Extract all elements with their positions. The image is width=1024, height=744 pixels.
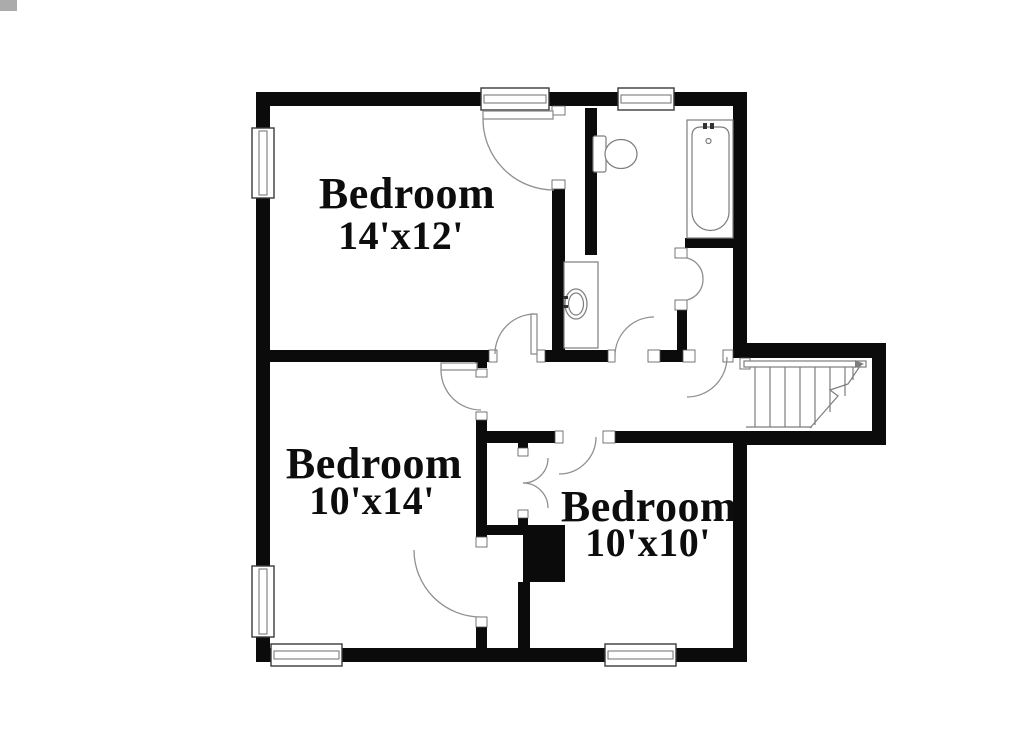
- window: [605, 644, 676, 666]
- door-swing: [414, 550, 481, 617]
- wall-stair-bottom: [733, 431, 886, 445]
- room-label-bedroom-14x12-name: Bedroom: [319, 172, 495, 216]
- room-label-bedroom-10x14-dims: 10'x14': [309, 481, 435, 521]
- double-door-swing: [523, 458, 548, 508]
- window: [252, 566, 274, 637]
- wall-closet-stub-bottom: [518, 518, 528, 525]
- bifold-door-swing: [687, 258, 703, 300]
- wall-stair-top: [747, 343, 886, 358]
- room-label-bedroom-14x12-dims: 14'x12': [338, 216, 464, 256]
- wall-closet-south: [483, 525, 523, 535]
- wall-hall-north-a: [256, 350, 489, 362]
- window: [618, 88, 674, 110]
- wall-bedroom2-east-low: [476, 627, 487, 648]
- wall-closet-b-east: [518, 582, 530, 648]
- wall-bedroom1-east-stub: [552, 92, 565, 106]
- door-swing: [559, 437, 596, 474]
- room-label-bedroom-10x10-dims: 10'x10': [585, 523, 711, 563]
- door-swing: [441, 363, 481, 410]
- wall-bedroom1-east: [552, 189, 565, 361]
- floor-plan-drawing: [0, 0, 1024, 744]
- door-swing: [687, 357, 727, 397]
- bathtub: [687, 120, 733, 238]
- door-swing: [495, 314, 537, 354]
- wall-hall-south-a: [483, 431, 555, 443]
- toilet: [593, 136, 637, 172]
- floor-plan: Bedroom 14'x12' Bedroom 10'x14' Bedroom …: [0, 0, 1024, 744]
- chimney: [523, 525, 565, 582]
- window: [252, 128, 274, 198]
- wall-stair-right: [872, 343, 886, 445]
- wall-hall-south-b: [615, 431, 733, 443]
- wall-linen-west: [677, 310, 687, 356]
- wall-closet-stub-top: [518, 443, 528, 448]
- staircase: [744, 360, 866, 428]
- wall-linen-top: [685, 238, 733, 248]
- wall-hall-north-b: [545, 350, 608, 362]
- wall-exterior-right-upper: [733, 92, 747, 358]
- fixtures: [563, 120, 866, 428]
- window: [481, 88, 549, 110]
- sink-vanity: [563, 262, 598, 348]
- wall-bath-chase: [585, 108, 597, 255]
- wall-exterior-right-lower: [733, 431, 747, 662]
- window: [271, 644, 342, 666]
